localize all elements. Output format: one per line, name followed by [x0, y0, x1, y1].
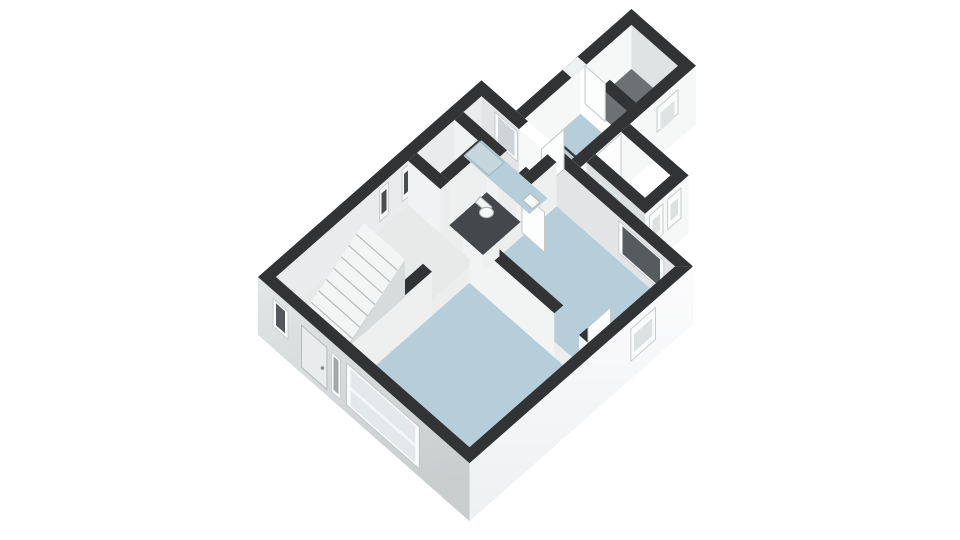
door-sidelight-glass — [334, 356, 339, 394]
front-door-handle — [321, 366, 325, 370]
nw-slit-window-1-glass — [382, 189, 387, 214]
floorplan-svg — [0, 0, 960, 540]
toilet-bowl — [480, 207, 494, 217]
floorplan-image — [0, 0, 960, 540]
